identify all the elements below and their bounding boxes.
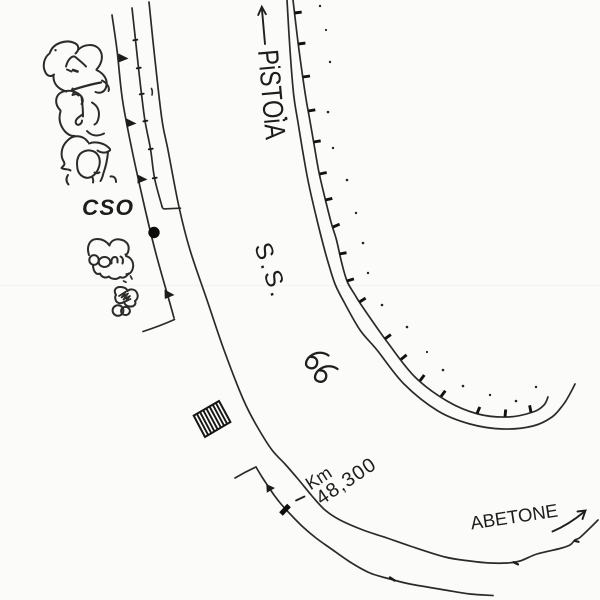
- svg-text:CSO: CSO: [82, 195, 134, 220]
